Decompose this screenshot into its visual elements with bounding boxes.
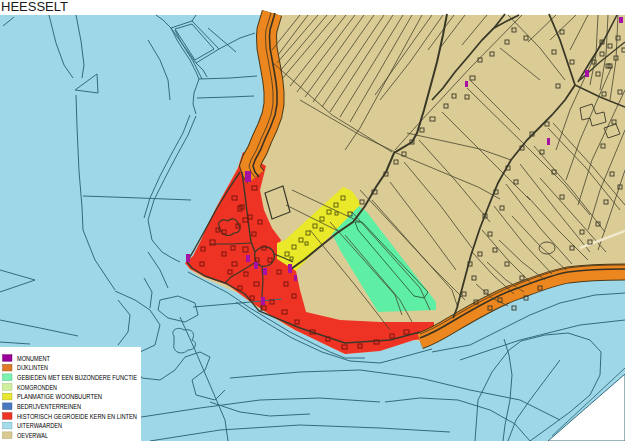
svg-text:OEVERWAL: OEVERWAL [17,432,48,439]
svg-text:UITERWAARDEN: UITERWAARDEN [17,422,62,429]
svg-text:MONUMENT: MONUMENT [17,355,51,362]
svg-text:HISTORISCH GEGROEIDE KERN EN L: HISTORISCH GEGROEIDE KERN EN LINTEN [17,413,137,420]
svg-text:HEESSELT: HEESSELT [1,0,68,14]
svg-text:BEDRIJVENTERREINEN: BEDRIJVENTERREINEN [17,403,81,410]
svg-text:GEBIEDEN MET EEN BIJZONDERE FU: GEBIEDEN MET EEN BIJZONDERE FUNCTIE [17,374,137,381]
svg-text:PLANMATIGE WOONBUURTEN: PLANMATIGE WOONBUURTEN [17,393,102,400]
svg-text:KOMGRONDEN: KOMGRONDEN [17,384,57,391]
svg-text:DIJKLINTEN: DIJKLINTEN [17,364,48,371]
